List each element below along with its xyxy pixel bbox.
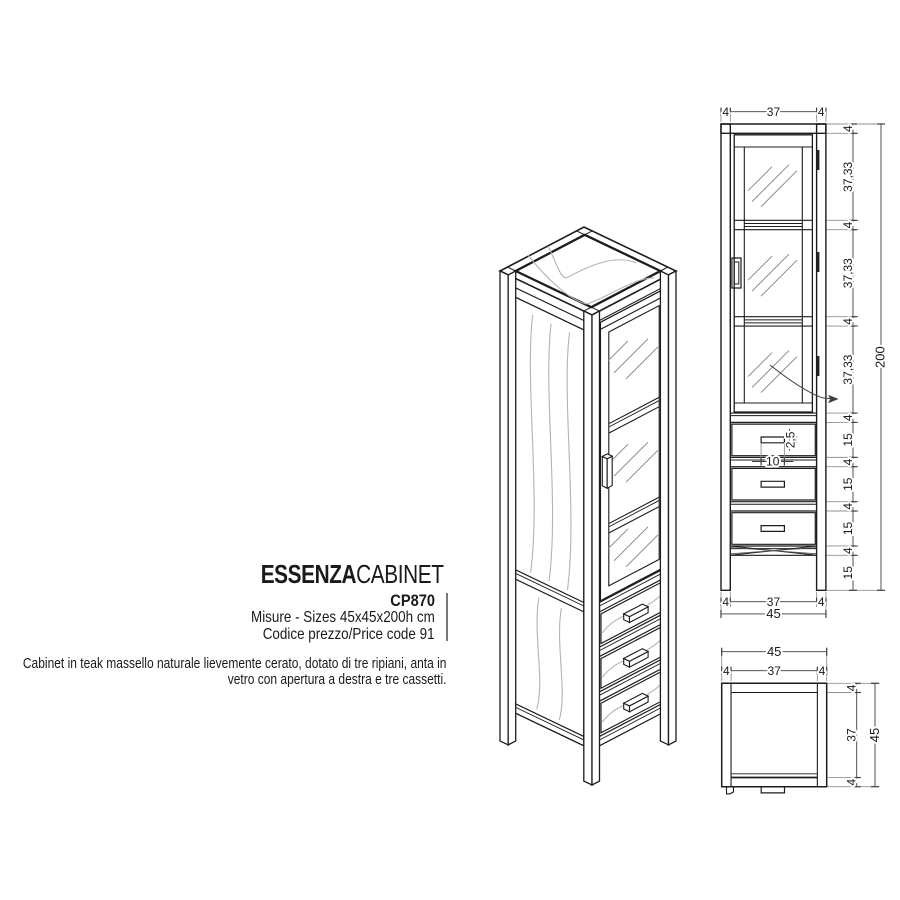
product-description-line1: Cabinet in teak massello naturale lievem… [22, 655, 446, 672]
dim-label: 4 [818, 105, 825, 119]
isometric-view [500, 227, 676, 785]
title-separator-line [446, 593, 448, 641]
dim-label: 4 [818, 595, 825, 609]
dim-label: 200 [873, 346, 888, 368]
dim-label: 4 [723, 664, 730, 678]
dim-label: 15 [841, 433, 855, 447]
dim-label: 4 [841, 458, 855, 465]
product-type: CABINET [356, 559, 443, 589]
dim-label: 4 [845, 684, 859, 691]
dim-label: 4 [841, 547, 855, 554]
dim-label: 4 [841, 503, 855, 510]
spec-sheet-page: 4374437445437,33437,33437,33415415415415… [0, 0, 900, 900]
top-plan-view: 454374437445 [722, 644, 882, 794]
dim-label: 37 [845, 728, 859, 742]
dim-label: 2,5 [784, 431, 798, 448]
dim-label: 37 [768, 664, 782, 678]
dim-label: 37,33 [841, 258, 855, 288]
dim-label: 45 [766, 606, 780, 621]
dim-label: 37,33 [841, 162, 855, 192]
dim-label: 4 [841, 125, 855, 132]
dim-label: 10 [766, 455, 780, 469]
dim-label: 37,33 [841, 354, 855, 384]
product-series: ESSENZA [260, 559, 355, 589]
dim-label: 45 [867, 728, 882, 742]
product-description-line2: vetro con apertura a destra e tre casset… [227, 671, 446, 688]
dim-label: 45 [767, 644, 781, 659]
product-title: ESSENZACABINET [260, 561, 443, 588]
price-code-line: Codice prezzo/Price code 91 [263, 626, 435, 644]
dim-label: 37 [767, 105, 781, 119]
dim-label: 15 [841, 521, 855, 535]
dim-label: 4 [722, 105, 729, 119]
dim-label: 15 [841, 477, 855, 491]
product-code: CP870 [390, 591, 435, 611]
technical-drawing-canvas: 4374437445437,33437,33437,33415415415415… [0, 0, 900, 900]
dim-label: 15 [841, 566, 855, 580]
front-elevation-view: 4374437445437,33437,33437,33415415415415… [721, 105, 888, 621]
dim-label: 4 [841, 414, 855, 421]
dim-label: 4 [845, 778, 859, 785]
sizes-line: Misure - Sizes 45x45x200h cm [251, 609, 435, 627]
dim-label: 4 [819, 664, 826, 678]
dim-label: 4 [841, 221, 855, 228]
dim-label: 4 [841, 318, 855, 325]
dim-label: 4 [722, 595, 729, 609]
